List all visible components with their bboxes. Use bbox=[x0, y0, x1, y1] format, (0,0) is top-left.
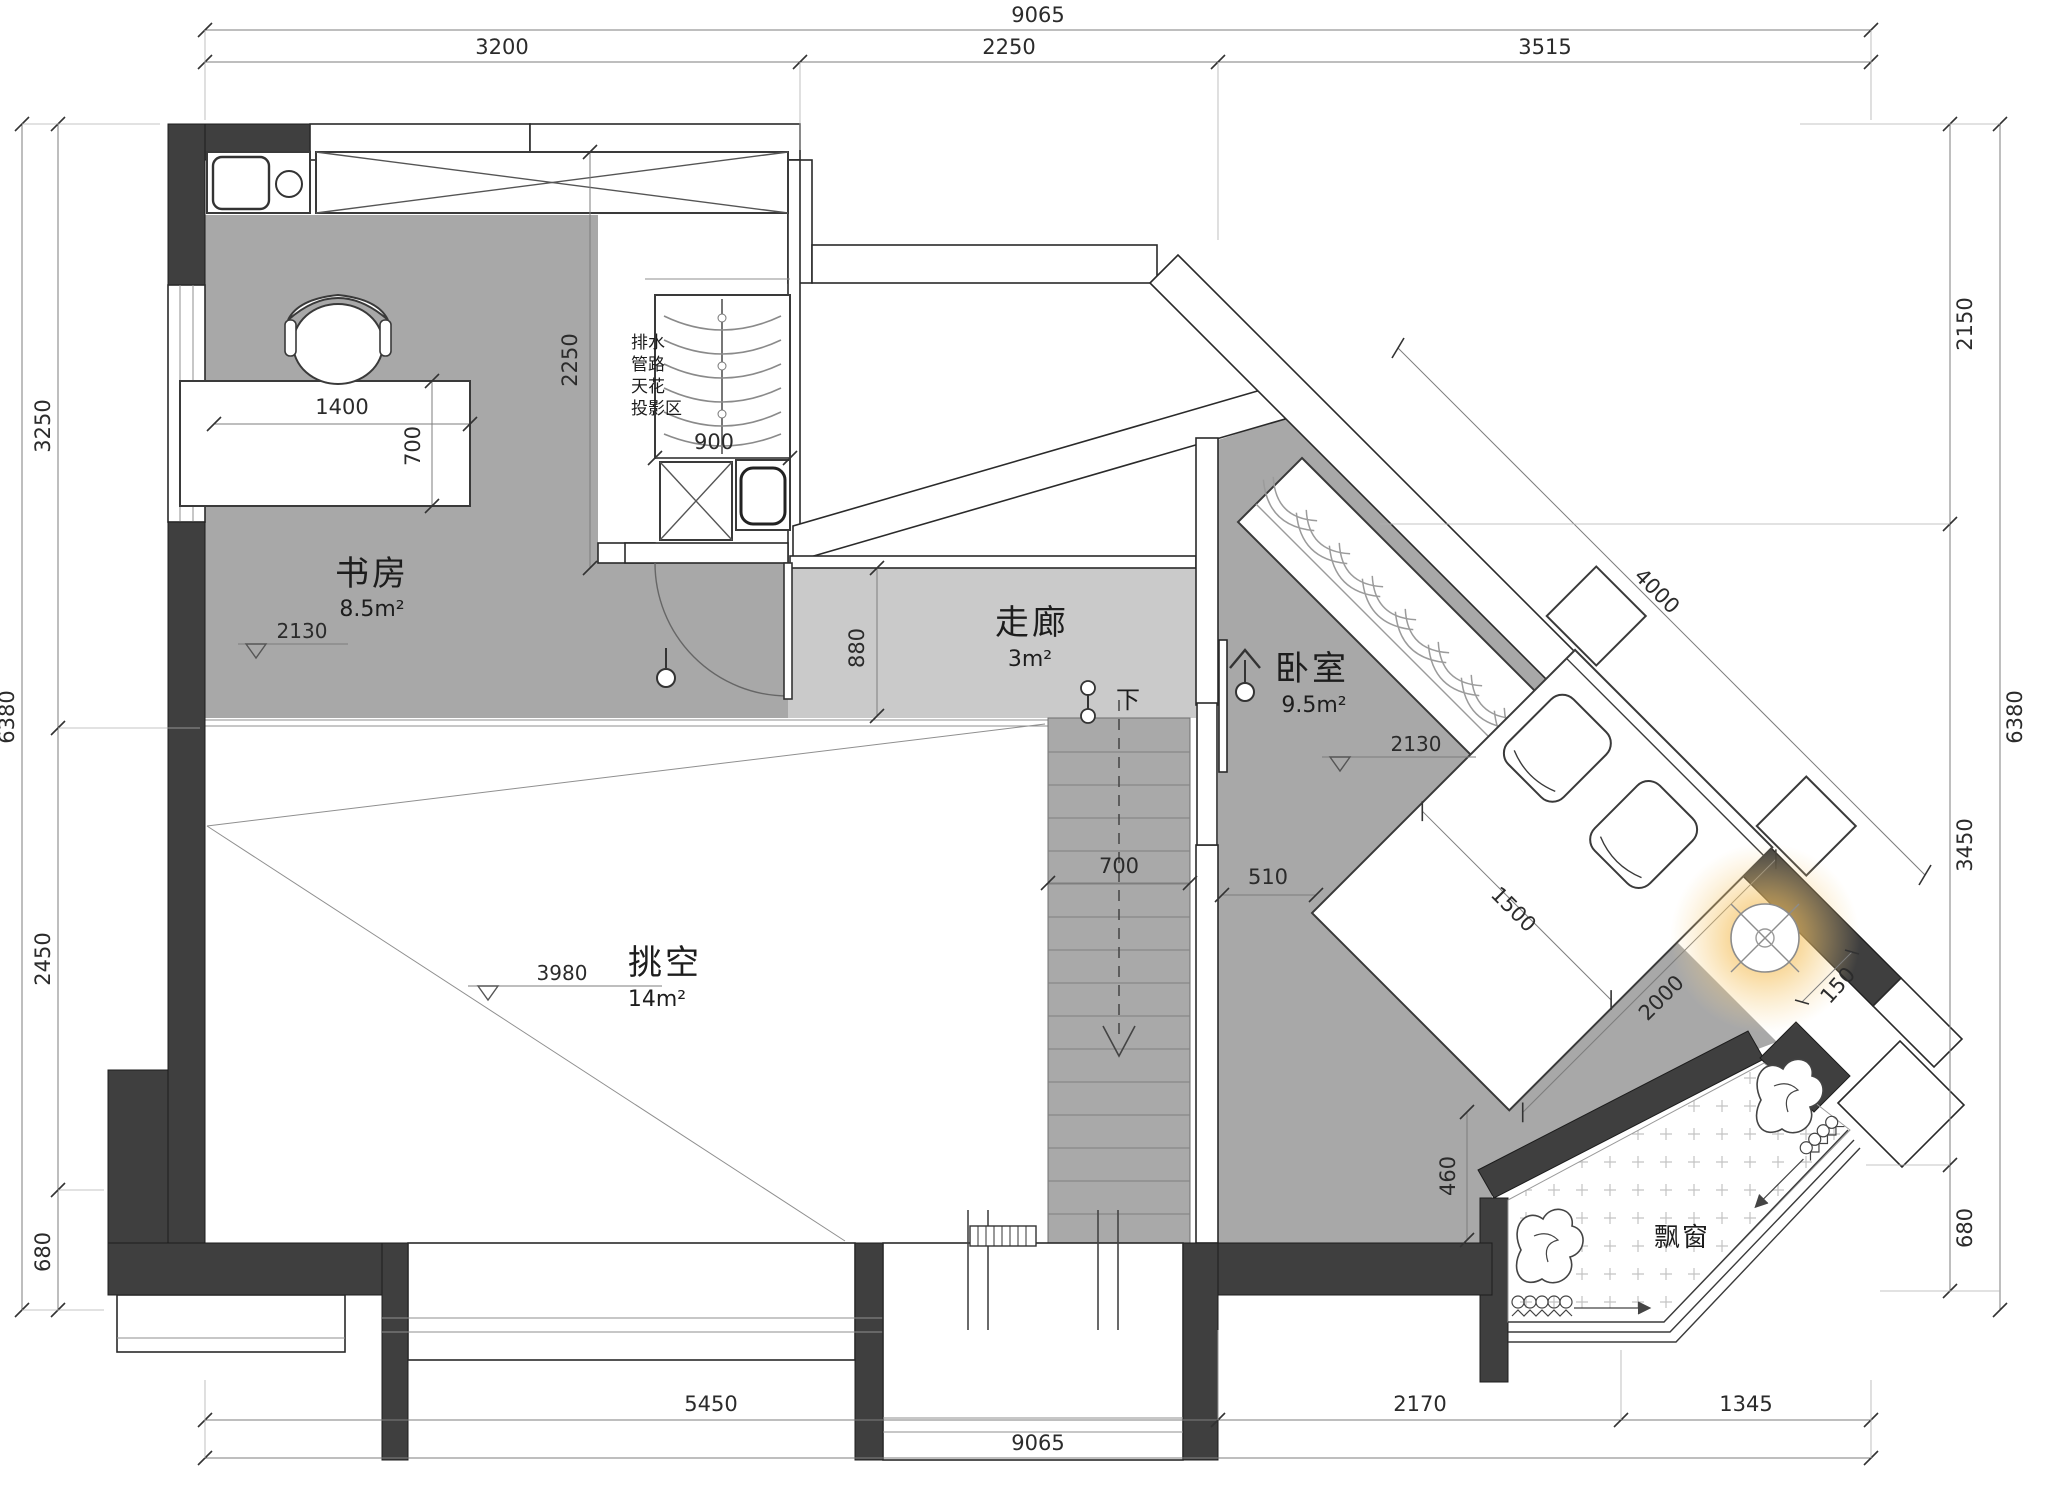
wall-corridor-top bbox=[790, 556, 1196, 568]
svg-text:管路: 管路 bbox=[631, 355, 665, 375]
void-label: 挑空 bbox=[628, 943, 702, 983]
svg-text:2130: 2130 bbox=[277, 619, 328, 643]
top-cabinet bbox=[316, 152, 788, 213]
svg-text:9065: 9065 bbox=[1011, 3, 1064, 27]
wall-left-lower bbox=[168, 522, 205, 1295]
svg-text:2170: 2170 bbox=[1393, 1392, 1446, 1416]
study-label: 书房 bbox=[335, 554, 409, 594]
bottom-wall bbox=[108, 1210, 1492, 1460]
sink-counter bbox=[207, 152, 310, 213]
svg-text:2250: 2250 bbox=[558, 333, 582, 386]
svg-text:排水: 排水 bbox=[631, 333, 665, 353]
bedroom-area: 9.5m² bbox=[1281, 693, 1346, 718]
stair-down-label: 下 bbox=[1116, 686, 1140, 714]
wall-bedroom-left-lower bbox=[1196, 845, 1218, 1243]
svg-text:1400: 1400 bbox=[315, 395, 368, 419]
svg-text:6380: 6380 bbox=[0, 690, 19, 743]
svg-text:2130: 2130 bbox=[1391, 732, 1442, 756]
bedroom-door-leaf bbox=[1197, 703, 1217, 845]
svg-text:2250: 2250 bbox=[982, 35, 1035, 59]
svg-text:9065: 9065 bbox=[1011, 1431, 1064, 1455]
wall-bay-outer-white-2 bbox=[1838, 1041, 1964, 1167]
washing-machine bbox=[736, 460, 790, 530]
svg-text:880: 880 bbox=[845, 628, 869, 668]
wall-bedroom-left-upper bbox=[1196, 438, 1218, 705]
svg-text:510: 510 bbox=[1248, 865, 1288, 889]
svg-text:2450: 2450 bbox=[31, 932, 55, 985]
radiator-grille bbox=[970, 1226, 1036, 1246]
door-leaf bbox=[784, 563, 792, 699]
bay-window-label: 飘窗 bbox=[1654, 1223, 1710, 1253]
svg-text:3250: 3250 bbox=[31, 399, 55, 452]
svg-text:3980: 3980 bbox=[537, 961, 588, 985]
wall-top-recessed bbox=[812, 245, 1157, 283]
svg-text:1345: 1345 bbox=[1719, 1392, 1772, 1416]
faucet-icon bbox=[276, 171, 302, 197]
svg-text:3200: 3200 bbox=[475, 35, 528, 59]
wall-left-upper bbox=[168, 124, 205, 285]
svg-text:700: 700 bbox=[401, 426, 425, 466]
floor-plan-page: 下 bbox=[0, 0, 2048, 1488]
storage-box bbox=[660, 462, 732, 540]
bedroom-door-frame bbox=[1219, 640, 1227, 772]
window-bay-middle bbox=[883, 1243, 1183, 1460]
wall-door-jamb bbox=[625, 543, 788, 563]
svg-text:3450: 3450 bbox=[1953, 818, 1977, 871]
svg-text:700: 700 bbox=[1099, 854, 1139, 878]
bedroom-label: 卧室 bbox=[1275, 649, 1349, 689]
floor-plan-drawing: 下 bbox=[0, 0, 2048, 1488]
window-bay-left bbox=[408, 1243, 855, 1360]
svg-text:3515: 3515 bbox=[1518, 35, 1571, 59]
void-area: 14m² bbox=[628, 987, 686, 1012]
corridor-area: 3m² bbox=[1008, 647, 1052, 672]
void-area bbox=[205, 720, 1048, 1241]
door-handle-icon bbox=[657, 669, 675, 687]
svg-text:投影区: 投影区 bbox=[631, 399, 682, 419]
study-area: 8.5m² bbox=[339, 597, 404, 622]
svg-text:天花: 天花 bbox=[631, 377, 665, 397]
svg-text:460: 460 bbox=[1436, 1156, 1460, 1196]
stairs bbox=[1048, 700, 1190, 1243]
left-step-box bbox=[117, 1295, 345, 1352]
svg-text:6380: 6380 bbox=[2003, 690, 2027, 743]
svg-text:680: 680 bbox=[1953, 1208, 1977, 1248]
svg-text:2150: 2150 bbox=[1953, 297, 1977, 350]
corridor-label: 走廊 bbox=[995, 603, 1069, 643]
svg-text:900: 900 bbox=[694, 430, 734, 454]
svg-text:5450: 5450 bbox=[684, 1392, 737, 1416]
svg-text:680: 680 bbox=[31, 1232, 55, 1272]
sink-icon bbox=[213, 157, 269, 209]
